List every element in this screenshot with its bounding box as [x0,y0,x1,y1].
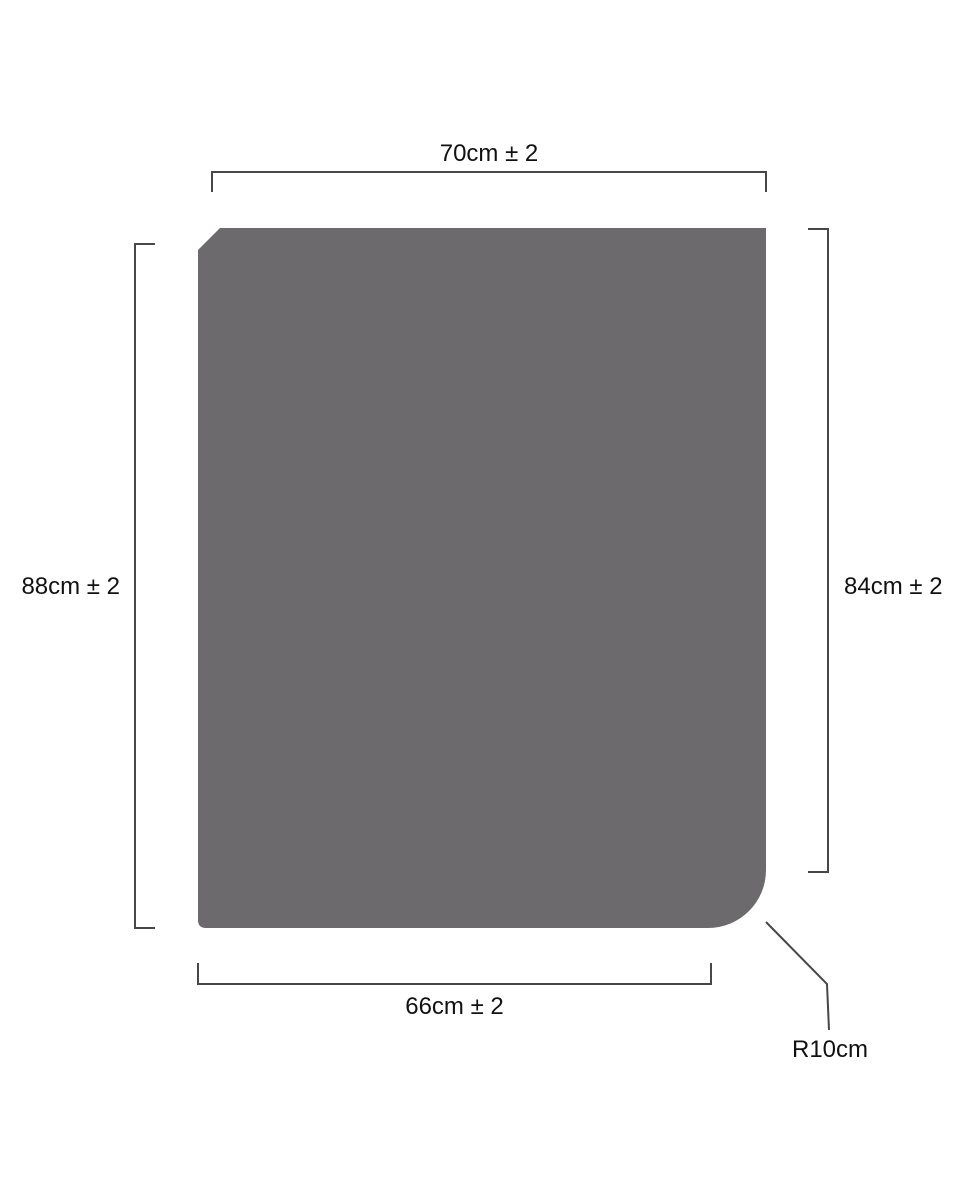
top-dimension-label: 70cm ± 2 [212,140,766,168]
left-dimension-label: 88cm ± 2 [8,573,120,601]
radius-leader-line [766,922,829,1030]
bottom-dimension-label: 66cm ± 2 [198,993,711,1021]
right-dimension-line [808,229,828,872]
right-dimension-label: 84cm ± 2 [844,573,960,601]
corner-radius-label: R10cm [770,1036,890,1064]
bottom-dimension-line [198,963,711,984]
panel-shape [198,228,766,928]
top-dimension-line [212,172,766,192]
left-dimension-line [135,244,155,928]
dimension-diagram: 70cm ± 2 88cm ± 2 84cm ± 2 66cm ± 2 R10c… [0,0,960,1200]
